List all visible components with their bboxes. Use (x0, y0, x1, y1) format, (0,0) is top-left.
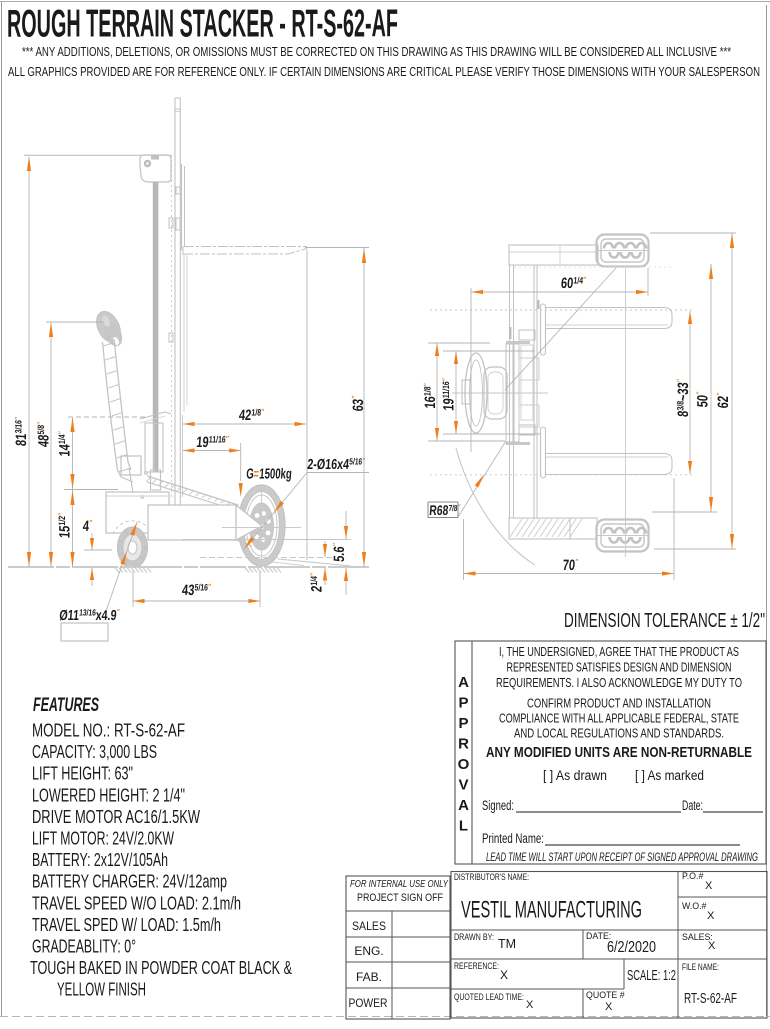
svg-text:RT-S-62-AF: RT-S-62-AF (684, 991, 737, 1007)
svg-text:TRAVEL SPEED W/O LOAD: 2.1m/h: TRAVEL SPEED W/O LOAD: 2.1m/h (32, 892, 241, 913)
svg-text:COMPLIANCE WITH ALL APPLICABLE: COMPLIANCE WITH ALL APPLICABLE FEDERAL, … (499, 712, 739, 726)
svg-text:X: X (605, 1001, 613, 1013)
svg-text:O: O (458, 756, 470, 773)
svg-text:DISTRIBUTOR'S NAME:: DISTRIBUTOR'S NAME: (454, 872, 529, 882)
svg-text:DRAWN BY:: DRAWN BY: (454, 932, 494, 942)
svg-text:FEATURES: FEATURES (33, 695, 99, 716)
svg-text:AND LOCAL REGULATIONS AND STAN: AND LOCAL REGULATIONS AND STANDARDS. (514, 727, 724, 741)
svg-text:REFERENCE:: REFERENCE: (454, 961, 499, 971)
svg-text:6/2/2020: 6/2/2020 (607, 939, 656, 956)
svg-text:V: V (458, 777, 468, 794)
svg-text:LIFT HEIGHT: 63": LIFT HEIGHT: 63" (32, 763, 133, 784)
svg-text:POWER: POWER (349, 996, 388, 1010)
svg-text:LIFT MOTOR: 24V/2.0KW: LIFT MOTOR: 24V/2.0KW (32, 828, 174, 849)
svg-text:X: X (705, 880, 713, 892)
svg-text:I, THE UNDERSIGNED, AGREE THAT: I, THE UNDERSIGNED, AGREE THAT THE PRODU… (499, 645, 739, 659)
svg-text:SALES: SALES (352, 919, 386, 933)
svg-text:PROJECT SIGN OFF: PROJECT SIGN OFF (357, 892, 443, 904)
svg-text:[ ] As drawn: [ ] As drawn (543, 768, 607, 783)
svg-text:ROUGH TERRAIN STACKER - RT-S-6: ROUGH TERRAIN STACKER - RT-S-62-AF (7, 3, 398, 46)
svg-text:VESTIL MANUFACTURING: VESTIL MANUFACTURING (461, 897, 642, 924)
svg-text:X: X (708, 940, 716, 952)
svg-text:Date:: Date: (682, 798, 703, 813)
svg-text:W.O.#: W.O.# (682, 901, 707, 911)
svg-text:LEAD TIME WILL START UPON RECE: LEAD TIME WILL START UPON RECEIPT OF SIG… (486, 850, 758, 864)
svg-text:GRADEABLITY: 0°: GRADEABLITY: 0° (32, 936, 136, 957)
svg-text:DIMENSION TOLERANCE ± 1/2": DIMENSION TOLERANCE ± 1/2" (564, 610, 765, 632)
svg-text:ALL GRAPHICS PROVIDED ARE FOR: ALL GRAPHICS PROVIDED ARE FOR REFERENCE … (8, 64, 760, 79)
svg-text:LOWERED HEIGHT: 2 1/4": LOWERED HEIGHT: 2 1/4" (32, 784, 185, 805)
svg-text:83/8~33″: 83/8~33″ (674, 378, 691, 417)
svg-text:ENG.: ENG. (354, 944, 383, 958)
svg-text:DRIVE MOTOR AC16/1.5KW: DRIVE MOTOR AC16/1.5KW (32, 806, 200, 827)
svg-text:Printed Name:: Printed Name: (482, 831, 544, 846)
svg-text:QUOTED LEAD TIME:: QUOTED LEAD TIME: (454, 992, 524, 1002)
svg-text:A: A (458, 674, 469, 691)
svg-text:L: L (459, 818, 468, 835)
svg-text:FOR INTERNAL USE ONLY: FOR INTERNAL USE ONLY (350, 879, 449, 890)
svg-text:A: A (458, 797, 469, 814)
svg-text:Signed:: Signed: (482, 798, 514, 813)
svg-text:SCALE: 1:2: SCALE: 1:2 (627, 967, 676, 984)
svg-text:FAB.: FAB. (356, 970, 382, 984)
svg-text:R: R (458, 736, 469, 753)
svg-text:FILE NAME:: FILE NAME: (682, 962, 719, 972)
svg-text:MODEL NO.: RT-S-62-AF: MODEL NO.: RT-S-62-AF (32, 720, 185, 741)
svg-text:CONFIRM PRODUCT AND INSTALLATI: CONFIRM PRODUCT AND INSTALLATION (527, 697, 711, 711)
svg-text:[ ] As marked: [ ] As marked (635, 768, 704, 783)
svg-text:*** ANY ADDITIONS, DELETIONS,: *** ANY ADDITIONS, DELETIONS, OR OMISSIO… (22, 44, 731, 59)
svg-text:BATTERY: 2x12V/105Ah: BATTERY: 2x12V/105Ah (32, 849, 168, 870)
svg-text:BATTERY CHARGER: 24V/12amp: BATTERY CHARGER: 24V/12amp (32, 871, 227, 892)
svg-text:REPRESENTED SATISFIES DESIGN A: REPRESENTED SATISFIES DESIGN AND DIMENSI… (507, 660, 732, 674)
svg-text:CAPACITY: 3,000 LBS: CAPACITY: 3,000 LBS (32, 741, 157, 762)
svg-text:X: X (500, 968, 508, 982)
svg-text:REQUIREMENTS. I ALSO ACKNOWLE: REQUIREMENTS. I ALSO ACKNOWLEDGE MY DUTY… (496, 676, 742, 690)
svg-text:P.O.#: P.O.# (682, 871, 703, 881)
svg-text:X: X (526, 999, 534, 1011)
svg-text:TM: TM (498, 937, 516, 951)
svg-text:YELLOW FINISH: YELLOW FINISH (57, 979, 146, 1000)
svg-text:TRAVEL SPED W/ LOAD: 1.5m/h: TRAVEL SPED W/ LOAD: 1.5m/h (32, 914, 221, 935)
svg-text:TOUGH BAKED IN POWDER COAT BLA: TOUGH BAKED IN POWDER COAT BLACK & (30, 957, 292, 978)
svg-text:1500kg: 1500kg (259, 466, 293, 482)
svg-text:P: P (458, 715, 468, 732)
svg-text:QUOTE #: QUOTE # (586, 990, 625, 1000)
svg-text:P: P (458, 695, 468, 712)
svg-text:X: X (707, 910, 715, 922)
svg-text:ANY MODIFIED UNITS ARE NON-RET: ANY MODIFIED UNITS ARE NON-RETURNABLE (486, 745, 752, 761)
